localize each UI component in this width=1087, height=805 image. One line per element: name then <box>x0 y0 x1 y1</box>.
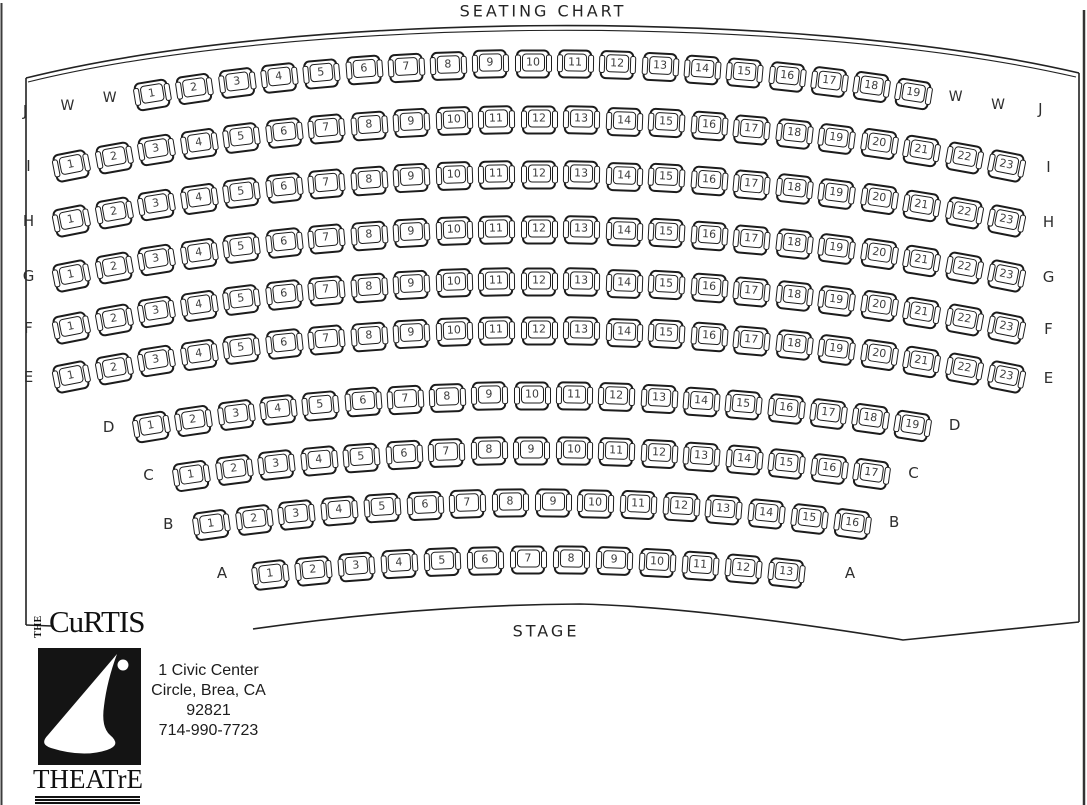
seat-H-16: 16 <box>691 165 727 196</box>
seat-armrest-left <box>387 58 394 76</box>
seat-armrest-left <box>689 115 696 133</box>
seat-number: 2 <box>100 356 126 378</box>
seat-J-19: 19 <box>894 77 932 111</box>
seat-G-7: 7 <box>308 223 344 255</box>
seat-H-17: 17 <box>733 169 769 201</box>
seat-J-10: 10 <box>516 49 550 78</box>
row-label-left-A: A <box>217 564 227 582</box>
seat-number: 15 <box>654 112 678 131</box>
seat-number: 1 <box>178 464 203 485</box>
seat-number: 1 <box>58 153 84 175</box>
seat-armrest-left <box>767 561 775 580</box>
seat-number: 18 <box>859 75 884 96</box>
seat-armrest-left <box>320 502 327 520</box>
seat-armrest-right <box>583 550 589 568</box>
seat-C-8: 8 <box>471 437 506 467</box>
seat-armrest-right <box>593 166 599 184</box>
seat-number: 1 <box>139 82 165 103</box>
seat-armrest-left <box>466 551 472 569</box>
seat-armrest-right <box>394 497 401 515</box>
seat-armrest-left <box>732 173 740 191</box>
seat-C-3: 3 <box>258 449 295 482</box>
seat-B-2: 2 <box>235 503 272 536</box>
seat-number: 17 <box>739 173 764 193</box>
seat-I-21: 21 <box>902 134 940 168</box>
seat-number: 4 <box>186 187 211 208</box>
seat-armrest-right <box>551 110 557 128</box>
seat-number: 5 <box>430 550 454 569</box>
seat-armrest-right <box>380 277 387 295</box>
seat-number: 8 <box>498 492 521 510</box>
seat-F-22: 22 <box>944 303 983 338</box>
seat-G-17: 17 <box>733 224 769 256</box>
seat-armrest-left <box>392 114 399 132</box>
seat-G-6: 6 <box>265 227 302 259</box>
seat-number: 16 <box>697 169 721 189</box>
seat-G-9: 9 <box>393 218 428 249</box>
seat-armrest-left <box>732 329 740 347</box>
seat-armrest-right <box>501 441 507 459</box>
seat-armrest-right <box>636 274 643 292</box>
seat-J-1: 1 <box>133 78 171 112</box>
seat-armrest-right <box>713 393 720 411</box>
seat-armrest-right <box>544 386 550 404</box>
seat-I-8: 8 <box>351 110 387 141</box>
seat-armrest-right <box>508 110 514 128</box>
seat-number: 7 <box>314 117 338 137</box>
seat-number: 20 <box>866 242 891 263</box>
seat-armrest-left <box>689 170 696 188</box>
seat-number: 22 <box>951 356 977 378</box>
seat-armrest-left <box>647 112 654 130</box>
seat-armrest-left <box>435 112 442 130</box>
row-label-right-B: B <box>889 513 899 531</box>
seat-H-15: 15 <box>648 163 684 194</box>
seat-D-4: 4 <box>259 394 296 427</box>
seat-number: 8 <box>356 114 380 134</box>
seat-E-4: 4 <box>180 338 218 371</box>
seat-I-20: 20 <box>860 128 898 162</box>
seat-armrest-left <box>307 282 315 300</box>
seat-armrest-left <box>562 321 568 339</box>
seat-armrest-right <box>374 391 381 409</box>
seat-G-8: 8 <box>351 220 387 251</box>
seat-number: 13 <box>647 388 671 407</box>
seat-number: 1 <box>58 315 84 337</box>
seat-B-5: 5 <box>364 492 400 523</box>
seat-armrest-left <box>725 61 733 79</box>
seat-C-9: 9 <box>514 436 548 465</box>
seat-D-14: 14 <box>683 386 719 417</box>
seat-armrest-right <box>720 117 727 135</box>
seat-armrest-left <box>477 111 483 129</box>
seat-E-11: 11 <box>479 317 513 347</box>
seat-armrest-left <box>638 552 645 570</box>
seat-number: 19 <box>824 181 849 202</box>
seat-I-17: 17 <box>733 114 769 146</box>
seat-number: 12 <box>527 219 550 237</box>
row-label-left-E: E <box>24 368 33 386</box>
seat-J-18: 18 <box>852 71 890 104</box>
seat-E-17: 17 <box>733 325 769 357</box>
seat-armrest-left <box>257 457 265 476</box>
seat-number: 12 <box>647 443 671 462</box>
seat-armrest-left <box>349 227 356 245</box>
seat-number: 6 <box>271 332 296 352</box>
seat-D-1: 1 <box>132 410 170 444</box>
seat-number: 8 <box>559 549 582 567</box>
seat-B-11: 11 <box>620 490 655 520</box>
seat-number: 2 <box>241 508 266 529</box>
seat-G-11: 11 <box>479 216 513 246</box>
seat-armrest-left <box>514 54 520 72</box>
seat-C-6: 6 <box>386 439 422 470</box>
seat-number: 10 <box>521 53 544 71</box>
seat-I-7: 7 <box>308 113 344 145</box>
seat-number: 17 <box>739 118 764 138</box>
seat-armrest-left <box>562 220 568 238</box>
seat-number: 15 <box>654 222 678 241</box>
seat-armrest-right <box>454 551 461 569</box>
seat-armrest-right <box>587 54 593 72</box>
seat-number: 18 <box>781 122 806 142</box>
seat-G-16: 16 <box>691 220 727 251</box>
seat-F-7: 7 <box>308 275 344 307</box>
seat-B-1: 1 <box>192 509 230 542</box>
seat-number: 4 <box>186 294 211 315</box>
seat-armrest-left <box>470 442 476 460</box>
row-label-left-C: C <box>143 466 153 484</box>
seating-chart-page: SEATING CHART STAGE JJWWWW12345678910111… <box>0 0 1087 805</box>
seat-number: 22 <box>951 307 977 329</box>
seat-armrest-left <box>647 222 654 240</box>
seat-armrest-right <box>669 554 676 572</box>
seat-number: 4 <box>306 449 331 469</box>
seat-number: 10 <box>584 492 607 511</box>
seat-F-21: 21 <box>902 296 940 330</box>
seat-I-16: 16 <box>691 110 727 141</box>
seat-armrest-right <box>540 550 546 568</box>
seat-number: 9 <box>602 550 626 569</box>
seat-number: 16 <box>697 224 721 244</box>
seat-number: 6 <box>391 443 415 462</box>
seat-armrest-right <box>693 498 700 516</box>
seat-B-9: 9 <box>535 488 569 517</box>
seat-number: 15 <box>732 61 756 81</box>
seat-number: 5 <box>228 126 253 147</box>
seat-J-16: 16 <box>768 61 805 93</box>
address-line: Circle, Brea, CA <box>140 681 277 701</box>
seat-armrest-left <box>384 445 391 463</box>
row-label-left-B: B <box>163 515 173 533</box>
seat-armrest-right <box>805 125 813 144</box>
seat-armrest-right <box>423 167 430 185</box>
seat-armrest-right <box>714 61 721 79</box>
seat-armrest-left <box>647 323 654 341</box>
seat-armrest-right <box>543 441 549 459</box>
seat-armrest-right <box>551 272 557 290</box>
seat-number: 7 <box>314 227 338 247</box>
seat-number: 9 <box>478 385 501 403</box>
seat-I-4: 4 <box>180 127 218 160</box>
seat-J-11: 11 <box>558 50 592 80</box>
seat-armrest-left <box>427 443 434 461</box>
seat-A-10: 10 <box>639 548 674 579</box>
seat-number: 8 <box>356 169 380 189</box>
seat-armrest-left <box>520 165 526 183</box>
seat-number: 3 <box>143 349 169 370</box>
seat-armrest-right <box>415 444 422 462</box>
seat-G-19: 19 <box>817 232 854 265</box>
seat-H-7: 7 <box>308 168 344 200</box>
seat-armrest-right <box>565 493 571 511</box>
seat-number: 7 <box>314 172 338 192</box>
seat-armrest-left <box>349 117 356 135</box>
seat-number: 6 <box>271 121 296 141</box>
seat-F-14: 14 <box>606 268 641 298</box>
seat-number: 11 <box>688 554 712 574</box>
seat-F-15: 15 <box>648 270 684 301</box>
seat-E-16: 16 <box>691 321 727 352</box>
seat-number: 2 <box>181 76 206 97</box>
seat-number: 18 <box>781 284 806 304</box>
seat-F-1: 1 <box>52 310 91 345</box>
seat-number: 13 <box>774 561 799 581</box>
seat-C-2: 2 <box>215 454 252 487</box>
seat-armrest-right <box>636 222 643 240</box>
seat-armrest-right <box>459 387 466 405</box>
seat-number: 4 <box>265 398 290 418</box>
seat-armrest-right <box>678 169 685 187</box>
seat-number: 11 <box>484 320 507 338</box>
seat-I-18: 18 <box>775 118 812 150</box>
seat-armrest-right <box>678 114 685 132</box>
seat-G-5: 5 <box>222 232 259 265</box>
seat-armrest-left <box>337 558 344 576</box>
seat-number: 5 <box>309 62 334 82</box>
seat-D-9: 9 <box>472 382 507 412</box>
seat-number: 8 <box>477 440 500 458</box>
seat-armrest-left <box>681 554 688 572</box>
seat-armrest-right <box>755 451 763 469</box>
seat-armrest-left <box>597 442 604 460</box>
seat-number: 10 <box>645 551 669 570</box>
seat-C-16: 16 <box>810 452 847 485</box>
seat-E-8: 8 <box>351 321 387 352</box>
seat-armrest-right <box>508 220 514 238</box>
seat-D-6: 6 <box>344 387 380 418</box>
seat-armrest-right <box>626 552 633 570</box>
seat-armrest-left <box>605 221 612 239</box>
seat-armrest-left <box>307 331 315 349</box>
seat-number: 8 <box>356 325 380 345</box>
seat-I-1: 1 <box>52 148 91 183</box>
seat-armrest-left <box>640 443 647 461</box>
seat-I-2: 2 <box>94 140 133 175</box>
seat-number: 18 <box>858 407 883 428</box>
seat-C-11: 11 <box>599 437 634 467</box>
seat-number: 16 <box>697 276 721 296</box>
seat-armrest-right <box>678 276 685 294</box>
seat-H-6: 6 <box>265 172 302 204</box>
seat-number: 2 <box>100 255 126 277</box>
row-label-right-G: G <box>1043 268 1055 286</box>
seat-number: 13 <box>569 219 592 237</box>
seat-number: 11 <box>484 109 507 127</box>
seat-armrest-right <box>593 273 599 291</box>
seat-I-3: 3 <box>137 133 175 167</box>
address-line: 1 Civic Center <box>140 661 277 681</box>
seat-D-13: 13 <box>641 384 676 415</box>
wheelchair-label: W <box>103 90 117 106</box>
seat-armrest-left <box>520 220 526 238</box>
venue-address: 1 Civic Center Circle, Brea, CA 92821 71… <box>140 661 277 741</box>
row-label-right-J: J <box>1038 100 1042 118</box>
seat-number: 2 <box>100 200 126 222</box>
seat-number: 21 <box>909 248 935 269</box>
seat-number: 9 <box>519 440 542 458</box>
seat-D-3: 3 <box>217 399 254 432</box>
seat-F-8: 8 <box>351 272 387 303</box>
seat-number: 17 <box>739 280 764 300</box>
seat-armrest-left <box>429 56 436 74</box>
seat-armrest-left <box>428 388 435 406</box>
seat-number: 17 <box>739 329 764 349</box>
row-label-left-J: J <box>23 102 27 120</box>
seat-number: 3 <box>143 248 169 269</box>
seat-I-19: 19 <box>817 122 854 155</box>
seat-number: 1 <box>58 263 84 285</box>
seat-F-3: 3 <box>137 295 175 329</box>
seat-armrest-right <box>375 59 382 77</box>
seat-number: 6 <box>350 391 374 411</box>
seat-A-7: 7 <box>511 545 545 574</box>
seat-G-12: 12 <box>521 215 555 244</box>
seat-armrest-right <box>593 221 599 239</box>
seat-number: 18 <box>781 333 806 353</box>
row-label-right-C: C <box>908 464 918 482</box>
seat-B-16: 16 <box>833 507 871 540</box>
seat-C-5: 5 <box>343 442 379 473</box>
seat-armrest-left <box>406 496 413 514</box>
seat-F-18: 18 <box>775 280 812 312</box>
seat-H-5: 5 <box>222 177 259 210</box>
seat-number: 17 <box>816 401 841 422</box>
seat-G-10: 10 <box>436 216 471 246</box>
seat-number: 19 <box>901 81 927 102</box>
seat-armrest-left <box>392 224 399 242</box>
seat-D-12: 12 <box>599 382 634 412</box>
seat-armrest-left <box>647 167 654 185</box>
seat-armrest-left <box>562 165 568 183</box>
seat-number: 6 <box>412 494 436 513</box>
seat-armrest-left <box>555 386 561 404</box>
seat-armrest-right <box>508 321 514 339</box>
seat-number: 2 <box>301 559 326 579</box>
seat-number: 6 <box>351 59 375 79</box>
seat-number: 3 <box>143 138 169 159</box>
seat-armrest-left <box>509 550 515 568</box>
seat-I-15: 15 <box>648 108 684 139</box>
seat-armrest-left <box>534 493 540 511</box>
seat-G-22: 22 <box>944 251 983 286</box>
seat-C-7: 7 <box>428 438 463 468</box>
seat-G-21: 21 <box>902 244 940 278</box>
seat-I-5: 5 <box>222 122 259 155</box>
seat-C-4: 4 <box>300 445 337 477</box>
seat-H-1: 1 <box>52 203 91 238</box>
seat-H-18: 18 <box>775 173 812 205</box>
seat-number: 7 <box>314 279 338 299</box>
seat-number: 2 <box>100 145 126 167</box>
seat-number: 5 <box>228 288 253 309</box>
row-label-right-F: F <box>1044 320 1053 338</box>
seat-number: 10 <box>442 220 466 239</box>
seat-number: 3 <box>263 453 288 473</box>
seat-armrest-right <box>678 224 685 242</box>
seat-E-10: 10 <box>436 317 471 347</box>
seat-armrest-right <box>423 222 430 240</box>
seat-number: 3 <box>143 300 169 321</box>
seat-number: 5 <box>228 236 253 257</box>
seat-armrest-right <box>503 54 509 72</box>
seat-D-8: 8 <box>430 383 465 413</box>
wheelchair-label: W <box>991 97 1005 113</box>
seat-H-14: 14 <box>606 161 641 191</box>
seat-number: 21 <box>909 300 935 321</box>
seat-armrest-right <box>805 180 813 199</box>
seat-armrest-left <box>477 322 483 340</box>
seat-A-5: 5 <box>424 547 459 577</box>
seat-number: 13 <box>569 164 592 182</box>
seat-D-11: 11 <box>557 382 591 412</box>
seat-number: 3 <box>223 403 248 424</box>
seat-number: 10 <box>442 272 466 291</box>
seat-number: 22 <box>951 255 977 277</box>
row-label-right-H: H <box>1043 213 1054 231</box>
seat-armrest-left <box>392 169 399 187</box>
seat-number: 13 <box>711 498 735 518</box>
seat-number: 5 <box>308 394 333 414</box>
logo-curtis-text: CuRTIS <box>49 603 145 640</box>
seat-C-12: 12 <box>641 439 676 470</box>
seat-J-13: 13 <box>642 52 677 83</box>
seat-F-6: 6 <box>265 279 302 311</box>
seat-B-3: 3 <box>278 499 315 531</box>
seat-number: 11 <box>563 53 586 71</box>
seat-armrest-left <box>386 390 393 408</box>
seat-D-18: 18 <box>851 403 889 436</box>
seat-armrest-right <box>720 227 727 245</box>
seat-armrest-left <box>732 118 740 136</box>
seat-number: 12 <box>527 164 550 182</box>
seat-armrest-left <box>520 321 526 339</box>
seat-armrest-right <box>671 445 678 463</box>
seat-B-10: 10 <box>578 489 613 519</box>
seat-H-9: 9 <box>393 163 428 194</box>
seat-armrest-right <box>411 553 418 571</box>
seat-number: 4 <box>186 132 211 153</box>
seat-armrest-left <box>520 110 526 128</box>
seat-G-14: 14 <box>606 216 641 246</box>
seat-G-2: 2 <box>94 250 133 285</box>
seat-D-15: 15 <box>725 389 761 421</box>
seat-armrest-right <box>466 322 473 340</box>
row-label-right-I: I <box>1046 158 1050 176</box>
seat-number: 5 <box>228 337 253 358</box>
seat-J-5: 5 <box>303 58 339 90</box>
seat-F-20: 20 <box>860 290 898 324</box>
